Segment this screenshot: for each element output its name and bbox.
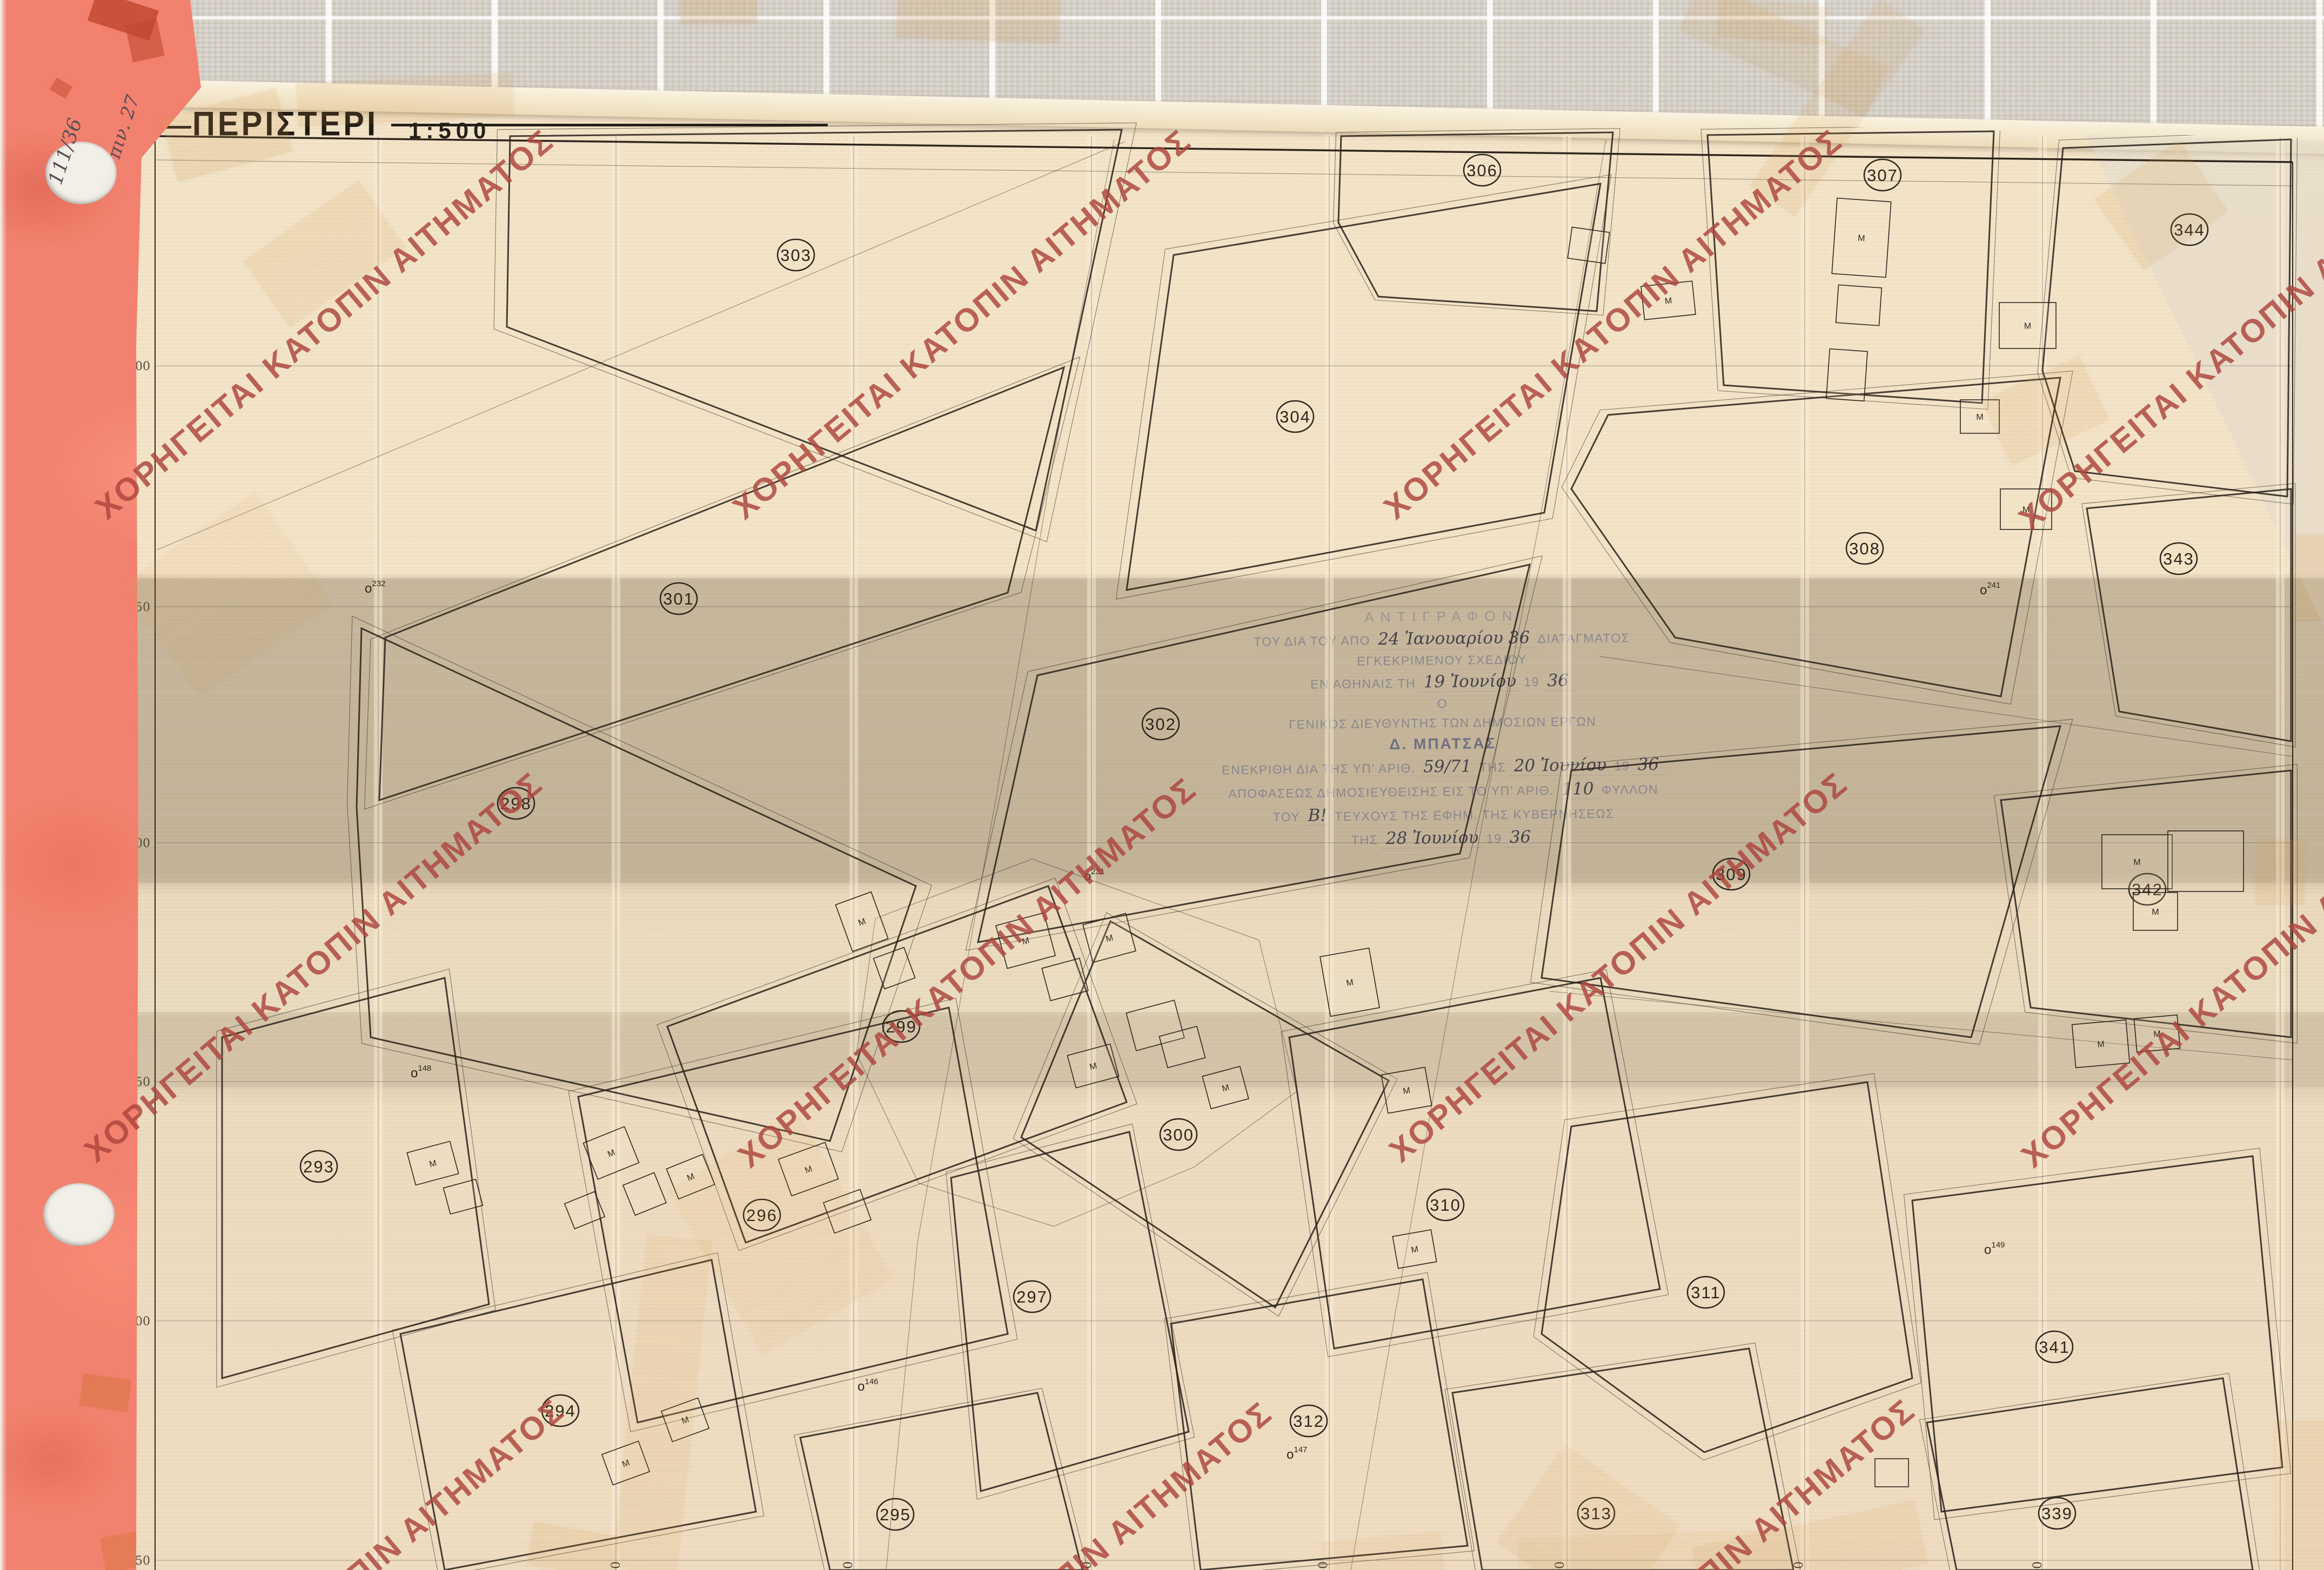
grid-x-tick-label: 50 [842, 1561, 855, 1570]
building: M [1832, 198, 1891, 278]
block-outline [1912, 1156, 2282, 1512]
building-outline [565, 1192, 605, 1229]
building: M [666, 1155, 714, 1199]
building [623, 1173, 666, 1216]
block-outline [667, 886, 1127, 1243]
building-outline [1875, 1459, 1908, 1487]
street-edge-line [347, 616, 932, 1152]
benchmark-point: o147 [1287, 1445, 1307, 1462]
punch-hole [43, 1183, 115, 1246]
stain [79, 1373, 131, 1412]
street-edge-line [946, 1124, 1195, 1499]
benchmark-point: o146 [858, 1377, 878, 1394]
building-label: M [1976, 413, 1983, 422]
building: M [1392, 1230, 1436, 1269]
block-number: 306 [1466, 161, 1498, 180]
grid-x-tick-label: 00 [1553, 1561, 1567, 1570]
block-outline [507, 130, 1122, 531]
building-outline [2168, 831, 2243, 891]
building: M [407, 1141, 458, 1185]
street-line [1550, 991, 2293, 1060]
building: M [2072, 1020, 2130, 1068]
building: M [1381, 1067, 1431, 1113]
block-outline [222, 978, 489, 1378]
block-number: 297 [1016, 1287, 1048, 1306]
block-outline [1927, 1378, 2253, 1570]
street-line [157, 142, 1125, 550]
street-edge-line [2082, 484, 2295, 747]
block-outline [1452, 1348, 1793, 1570]
block-number: 311 [1691, 1283, 1720, 1302]
block-number: 343 [2163, 549, 2194, 568]
block-outline [1127, 184, 1600, 590]
building-label: M [2097, 1039, 2105, 1049]
building: M [778, 1142, 838, 1196]
building-label: M [2022, 506, 2030, 515]
building: M [1999, 303, 2056, 348]
building [1568, 227, 1609, 263]
building [1836, 285, 1882, 325]
benchmark-point: o148 [411, 1064, 431, 1081]
block-outline [357, 628, 916, 1141]
building-outline [823, 1189, 871, 1233]
building: M [2000, 489, 2052, 529]
map-content: 3033063073443043013083433022983093422993… [155, 123, 2298, 1570]
building: M [1960, 400, 1999, 433]
map-border-top [155, 136, 2293, 162]
grid-x-tick-label: 00 [2031, 1561, 2045, 1570]
building-outline [1568, 227, 1609, 263]
block-outline [2087, 489, 2291, 741]
street-edge-line [1904, 1148, 2291, 1520]
block-number: 313 [1580, 1504, 1612, 1523]
building: M [1202, 1066, 1249, 1109]
map-drawing: 3033063073443043013083433022983093422993… [0, 0, 2324, 1570]
block-number: 293 [303, 1157, 334, 1176]
block-outline [2042, 139, 2291, 497]
building [565, 1192, 605, 1229]
block-number: 310 [1430, 1196, 1461, 1215]
benchmark-point: o241 [1980, 581, 2000, 598]
building: M [1320, 948, 1379, 1016]
binder-note: πιν. 27 [103, 92, 144, 162]
block-number: 301 [663, 589, 694, 608]
building-outline [623, 1173, 666, 1216]
map-border-top-inner [155, 160, 2293, 186]
block-outline [578, 1008, 1008, 1423]
building: M [661, 1398, 709, 1441]
street-line [1599, 656, 2293, 756]
block-number: 295 [880, 1505, 911, 1524]
street-edge-line [1533, 1073, 1921, 1460]
building [1042, 958, 1088, 1001]
building: M [602, 1441, 649, 1485]
building-outline [1826, 349, 1867, 401]
scanned-cadastral-map: 3033063073443043013083433022983093422993… [0, 0, 2324, 1570]
block-number: 308 [1849, 539, 1880, 558]
benchmark-point: o149 [1984, 1240, 2005, 1257]
compound-outline [856, 859, 1297, 1226]
building-label: M [2024, 322, 2031, 331]
block-number: 302 [1145, 715, 1176, 734]
building: M [2102, 835, 2172, 889]
block-number: 296 [746, 1206, 778, 1225]
block-number: 344 [2174, 220, 2205, 239]
torn-edge [0, 0, 6, 1570]
block-number: 312 [1293, 1412, 1324, 1431]
grid-x-tick-label: 50 [1792, 1561, 1806, 1570]
building-label: M [2152, 908, 2159, 917]
street-edge-line [1445, 1343, 1801, 1570]
street-edge-line [217, 969, 495, 1387]
block-outline [1338, 132, 1613, 311]
building [1875, 1459, 1908, 1487]
building [823, 1189, 871, 1233]
building: M [1641, 281, 1696, 320]
street-edge-line [794, 1388, 1089, 1570]
building: M [2134, 1015, 2180, 1052]
block-outline [379, 367, 1064, 800]
building: M [1067, 1044, 1119, 1088]
street-edge-line [2038, 131, 2298, 505]
building-label: M [1664, 296, 1672, 306]
ink-blotch [50, 77, 72, 99]
street-edge-line [365, 357, 1080, 809]
block-outline [978, 565, 1530, 942]
block-number: 303 [780, 246, 812, 265]
block-number: 309 [1716, 865, 1747, 884]
block-number: 299 [886, 1017, 917, 1036]
building-label: M [2153, 1029, 2161, 1039]
building-label: M [1858, 234, 1865, 244]
block-number: 294 [545, 1401, 576, 1420]
grid-x-tick-label: 50 [1317, 1561, 1330, 1570]
block-number: 298 [500, 794, 532, 813]
block-number: 339 [2041, 1504, 2073, 1523]
street-edge-line [494, 123, 1136, 541]
block-outline [1542, 1082, 1912, 1452]
building-label: M [2133, 858, 2140, 867]
building [2168, 831, 2243, 891]
building [1826, 349, 1867, 401]
ink-blotch [125, 19, 164, 63]
block-outline [951, 1132, 1189, 1491]
block-number: 300 [1163, 1125, 1194, 1144]
grid-x-tick-label: 00 [610, 1561, 623, 1570]
building: M [996, 913, 1055, 968]
street-edge-line [1919, 1373, 2260, 1570]
block-number: 307 [1867, 166, 1898, 185]
block-number: 304 [1280, 407, 1311, 426]
block-number: 341 [2039, 1338, 2070, 1357]
grid-x-tick-label: 00 [1081, 1561, 1094, 1570]
building-outline [1042, 958, 1088, 1001]
building-outline [1836, 285, 1882, 325]
building: M [2133, 893, 2178, 930]
